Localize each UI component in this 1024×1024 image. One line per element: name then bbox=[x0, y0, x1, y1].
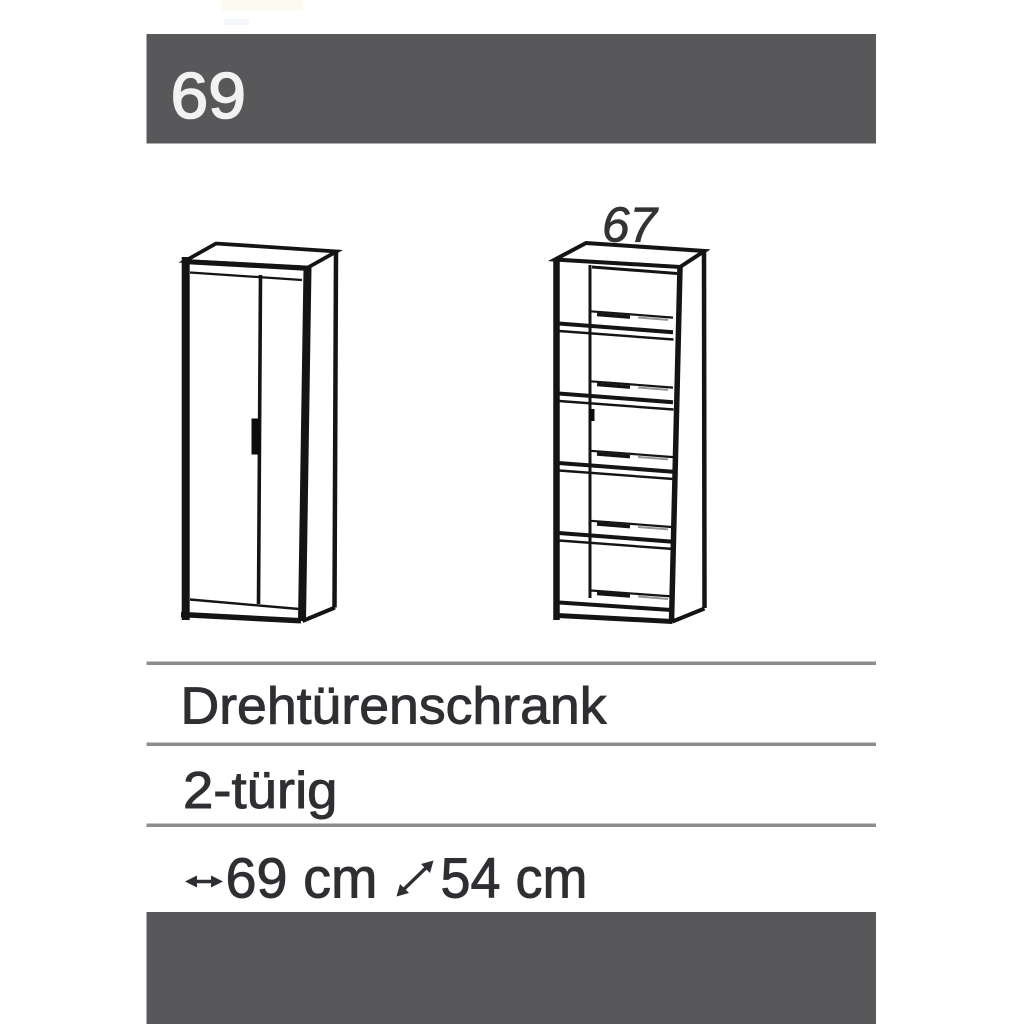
svg-text:69 cm: 69 cm bbox=[226, 847, 378, 911]
svg-text:Drehtürenschrank: Drehtürenschrank bbox=[181, 678, 608, 736]
svg-text:69: 69 bbox=[171, 59, 247, 132]
svg-text:2-türig: 2-türig bbox=[183, 762, 338, 820]
svg-text:54 cm: 54 cm bbox=[441, 847, 588, 911]
